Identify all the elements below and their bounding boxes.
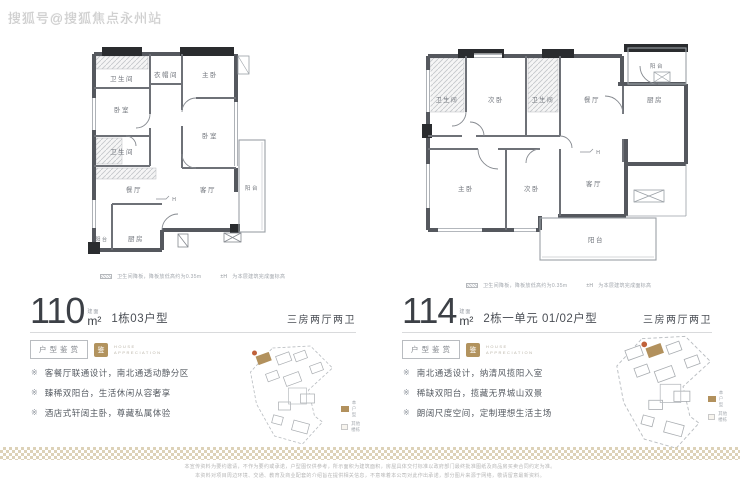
room-label: 卫生间 [110, 147, 134, 156]
site-minimap-right: 本户型 其他楼栋 [610, 334, 715, 459]
bullet-item: ※ 朗阔尺度空间，定制理想生活主场 [403, 408, 618, 418]
watermark: 搜狐号@搜狐焦点永州站 [8, 8, 162, 27]
minimap-legend-other: 其他楼栋 [351, 421, 360, 433]
minimap-legend-self: 本户型 [352, 400, 361, 418]
plan-subtitle: 2栋一单元 01/02户型 [483, 310, 597, 326]
room-label: 主卧 [458, 184, 474, 193]
plan-legend-right: 卫生间降板，降板放低高约为0.35m ±H 为本层建筑完成面标高 [466, 282, 651, 289]
room-label: 餐厅 [584, 95, 600, 104]
layout-type: 三房两厅两卫 [643, 311, 712, 326]
area-unit-symbol: m² [459, 315, 473, 327]
floor-plan-right: 卫生间 次卧 卫生间 餐厅 厨房 阳台 主卧 次卧 客厅 阳台 H [418, 44, 703, 279]
room-label: 卫生间 [110, 74, 134, 83]
plan-subtitle: 1栋03户型 [111, 310, 168, 326]
level-marker-label: H [172, 197, 176, 203]
room-label: 阳台 [245, 184, 259, 192]
legend-level-label: 为本层建筑完成面标高 [598, 282, 651, 289]
room-label: 卧室 [202, 131, 218, 140]
bullet-marker: ※ [31, 408, 38, 418]
other-swatch [708, 414, 715, 420]
sunken-slab-icon [100, 274, 112, 279]
room-label: 阳台 [650, 62, 664, 70]
room-label: 客厅 [200, 185, 216, 194]
sunken-slab-icon [466, 283, 478, 288]
minimap-legend-other: 其他楼栋 [718, 411, 727, 423]
bullet-marker: ※ [403, 408, 410, 418]
bullet-marker: ※ [403, 368, 410, 378]
minimap-legend-self: 本户型 [719, 390, 728, 408]
plan-title-left: 110 建面 m² 1栋03户型 三房两厅两卫 [30, 296, 356, 333]
site-plan-drawing [610, 334, 715, 454]
room-label: 厨房 [128, 234, 144, 243]
room-label: 客厅 [586, 179, 602, 188]
self-swatch [341, 406, 349, 412]
area-unit-symbol: m² [87, 315, 101, 327]
area-unit: 建面 m² [459, 310, 473, 327]
minimap-legend: 本户型 其他楼栋 [708, 390, 728, 426]
minimap-legend: 本户型 其他楼栋 [341, 400, 361, 436]
legend-sunken-label: 卫生间降板，降板放低高约为0.35m [483, 282, 567, 289]
legend-sunken-label: 卫生间降板，降板放低高约为0.35m [117, 273, 201, 280]
room-label: 餐厅 [126, 185, 142, 194]
bullet-item: ※ 臻稀双阳台，生活休闲从容奢享 [31, 388, 246, 398]
disclaimer-line1: 本宣传资料为要约邀请，不作为要约或承诺，户型图仅供参考，所示面积为建筑面积，房屋… [45, 463, 695, 472]
disclaimer: 本宣传资料为要约邀请，不作为要约或承诺，户型图仅供参考，所示面积为建筑面积，房屋… [45, 463, 695, 481]
level-symbol: ±H [586, 283, 593, 289]
gold-seal-icon: 鉴 [94, 343, 108, 357]
gold-seal-icon: 鉴 [466, 343, 480, 357]
self-swatch [708, 396, 716, 402]
area-unit: 建面 m² [87, 310, 101, 327]
room-label: 阳台 [95, 236, 108, 243]
layout-type: 三房两厅两卫 [287, 311, 356, 326]
badge-title: 户型鉴赏 [402, 340, 460, 359]
highlighted-building [645, 343, 664, 358]
legend-level-label: 为本层建筑完成面标高 [232, 273, 285, 280]
room-label: 主卧 [202, 70, 218, 79]
bullet-text: 南北通透设计，纳清风揽阳入室 [417, 368, 543, 378]
bullet-text: 臻稀双阳台，生活休闲从容奢享 [45, 388, 171, 398]
room-label: 阳台 [588, 235, 604, 244]
badge-title: 户型鉴赏 [30, 340, 88, 359]
decorative-pattern-band [0, 447, 740, 460]
room-label: 次卧 [488, 95, 504, 104]
room-label: 卫生间 [532, 96, 555, 104]
bullet-item: ※ 客餐厅联通设计，南北通透动静分区 [31, 368, 246, 378]
badge-en-line2: APPRECIATION [114, 350, 162, 356]
area-number: 114 [402, 296, 456, 327]
area-number: 110 [30, 296, 84, 327]
bullet-text: 稀缺双阳台，揽藏无界城山双景 [417, 388, 543, 398]
bullet-marker: ※ [31, 368, 38, 378]
bullet-text: 酒店式轩阔主卧，尊藏私属体验 [45, 408, 171, 418]
bullet-marker: ※ [403, 388, 410, 398]
site-plan-drawing [243, 344, 338, 449]
level-symbol: ±H [220, 274, 227, 280]
badge-english: HOUSE APPRECIATION [486, 344, 534, 356]
bullet-item: ※ 南北通透设计，纳清风揽阳入室 [403, 368, 618, 378]
bullet-text: 朗阔尺度空间，定制理想生活主场 [417, 408, 552, 418]
room-label: 厨房 [647, 95, 663, 104]
other-swatch [341, 424, 348, 430]
plan-title-right: 114 建面 m² 2栋一单元 01/02户型 三房两厅两卫 [402, 296, 712, 333]
site-minimap-left: 本户型 其他楼栋 [243, 344, 338, 454]
walls [422, 44, 688, 260]
brochure-page: 搜狐号@搜狐焦点永州站 [0, 0, 740, 502]
room-label: 卫生间 [436, 96, 459, 104]
bullet-item: ※ 稀缺双阳台，揽藏无界城山双景 [403, 388, 618, 398]
room-label: 衣帽间 [154, 70, 178, 79]
bullet-text: 客餐厅联通设计，南北通透动静分区 [45, 368, 189, 378]
floor-plan-left: 卫生间 衣帽间 主卧 卧室 卧室 卫生间 餐厅 客厅 阳台 厨房 阳台 H [86, 40, 271, 262]
appreciation-badge-left: 户型鉴赏 鉴 HOUSE APPRECIATION [30, 340, 162, 359]
level-marker-label: H [596, 150, 600, 156]
highlighted-building [256, 352, 272, 365]
appreciation-badge-right: 户型鉴赏 鉴 HOUSE APPRECIATION [402, 340, 534, 359]
badge-english: HOUSE APPRECIATION [114, 344, 162, 356]
bullet-item: ※ 酒店式轩阔主卧，尊藏私属体验 [31, 408, 246, 418]
badge-en-line2: APPRECIATION [486, 350, 534, 356]
room-label: 卧室 [114, 105, 130, 114]
selling-points-left: ※ 客餐厅联通设计，南北通透动静分区 ※ 臻稀双阳台，生活休闲从容奢享 ※ 酒店… [31, 368, 246, 429]
selling-points-right: ※ 南北通透设计，纳清风揽阳入室 ※ 稀缺双阳台，揽藏无界城山双景 ※ 朗阔尺度… [403, 368, 618, 429]
room-label: 次卧 [524, 184, 540, 193]
plan-legend-left: 卫生间降板，降板放低高约为0.35m ±H 为本层建筑完成面标高 [100, 273, 285, 280]
disclaimer-line2: 本资料对项目周边环境、交通、教育及商业配套的介绍旨在提供相关信息，不意味着本公司… [45, 472, 695, 481]
bullet-marker: ※ [31, 388, 38, 398]
